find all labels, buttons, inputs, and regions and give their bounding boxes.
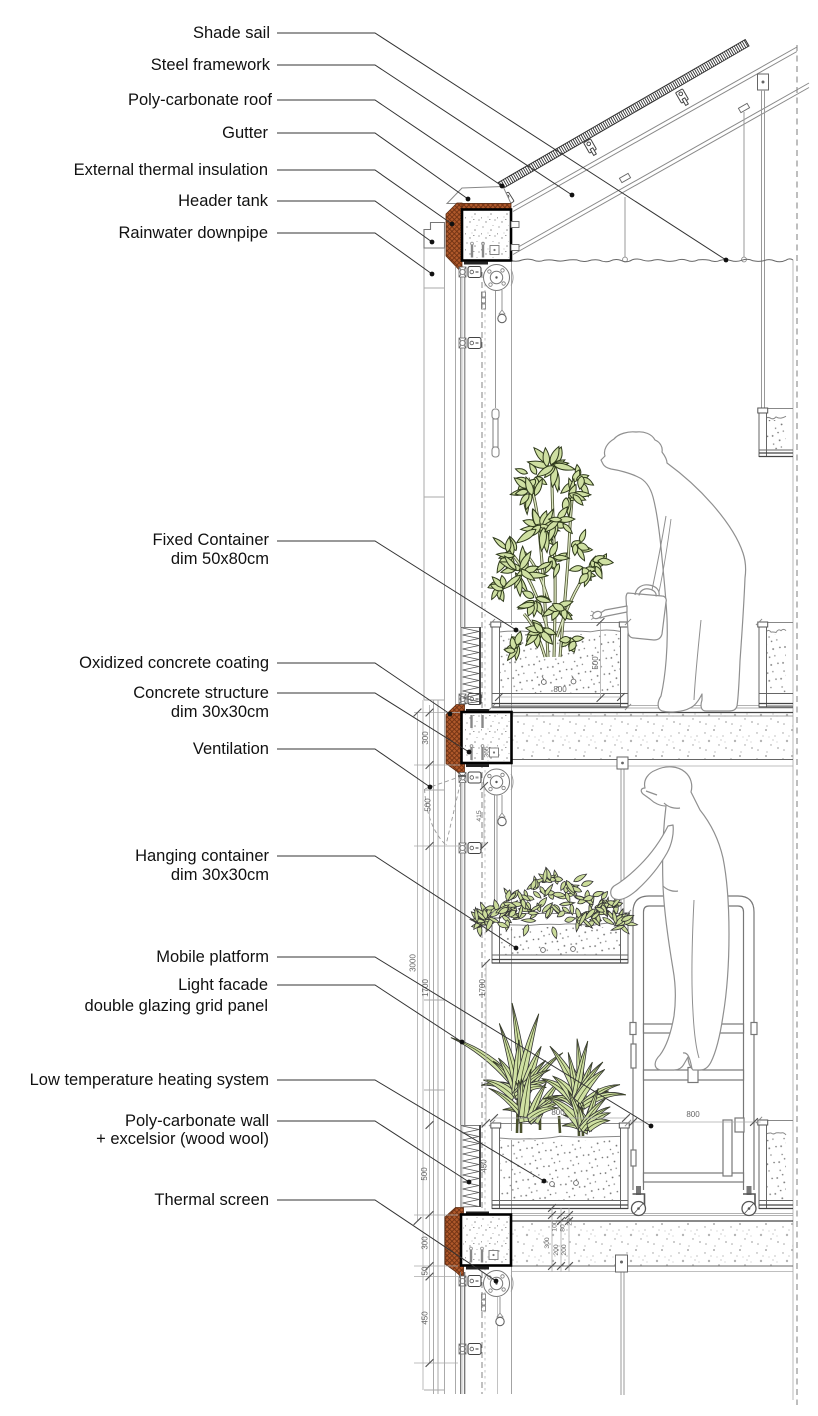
svg-text:dim 30x30cm: dim 30x30cm: [171, 703, 269, 721]
svg-text:300: 300: [421, 1236, 430, 1250]
svg-text:Ventilation: Ventilation: [193, 740, 269, 758]
svg-text:800: 800: [551, 1108, 565, 1117]
svg-text:450: 450: [480, 1159, 489, 1173]
svg-text:dim 30x30cm: dim 30x30cm: [171, 866, 269, 884]
svg-text:+ excelsior (wood wool): + excelsior (wood wool): [96, 1130, 269, 1148]
svg-text:20: 20: [567, 1218, 574, 1226]
svg-text:Rainwater downpipe: Rainwater downpipe: [118, 224, 268, 242]
svg-text:100: 100: [552, 1220, 559, 1232]
svg-text:Steel framework: Steel framework: [151, 56, 271, 74]
svg-text:Shade sail: Shade sail: [193, 24, 270, 42]
svg-text:50: 50: [421, 1266, 430, 1275]
svg-text:Poly-carbonate wall: Poly-carbonate wall: [125, 1112, 269, 1130]
svg-text:500: 500: [424, 798, 433, 812]
svg-text:800: 800: [553, 685, 567, 694]
svg-text:200: 200: [553, 1244, 560, 1256]
svg-text:500: 500: [591, 656, 600, 670]
svg-text:dim 50x80cm: dim 50x80cm: [171, 550, 269, 568]
svg-text:Mobile platform: Mobile platform: [156, 948, 269, 966]
svg-text:500: 500: [420, 1167, 429, 1181]
svg-text:double glazing grid panel: double glazing grid panel: [85, 997, 268, 1015]
svg-text:200: 200: [561, 1244, 568, 1256]
svg-text:Gutter: Gutter: [222, 124, 268, 142]
svg-text:300: 300: [421, 731, 430, 745]
svg-text:1700: 1700: [478, 979, 487, 997]
svg-text:Concrete structure: Concrete structure: [133, 684, 269, 702]
svg-text:Fixed Container: Fixed Container: [153, 531, 270, 549]
svg-text:3000: 3000: [409, 954, 418, 972]
svg-text:Thermal screen: Thermal screen: [154, 1191, 269, 1209]
svg-text:Low temperature heating system: Low temperature heating system: [30, 1071, 269, 1089]
svg-text:450: 450: [421, 1311, 430, 1325]
svg-text:Header tank: Header tank: [178, 192, 269, 210]
svg-text:External thermal insulation: External thermal insulation: [74, 161, 268, 179]
svg-text:300: 300: [544, 1237, 551, 1249]
svg-text:365: 365: [484, 746, 491, 758]
svg-text:Oxidized concrete coating: Oxidized concrete coating: [79, 654, 269, 672]
svg-text:Hanging container: Hanging container: [135, 847, 269, 865]
svg-text:Light facade: Light facade: [178, 976, 268, 994]
svg-text:Poly-carbonate roof: Poly-carbonate roof: [128, 91, 272, 109]
svg-text:415: 415: [476, 810, 483, 822]
svg-text:800: 800: [686, 1110, 700, 1119]
svg-text:80: 80: [560, 1224, 567, 1232]
